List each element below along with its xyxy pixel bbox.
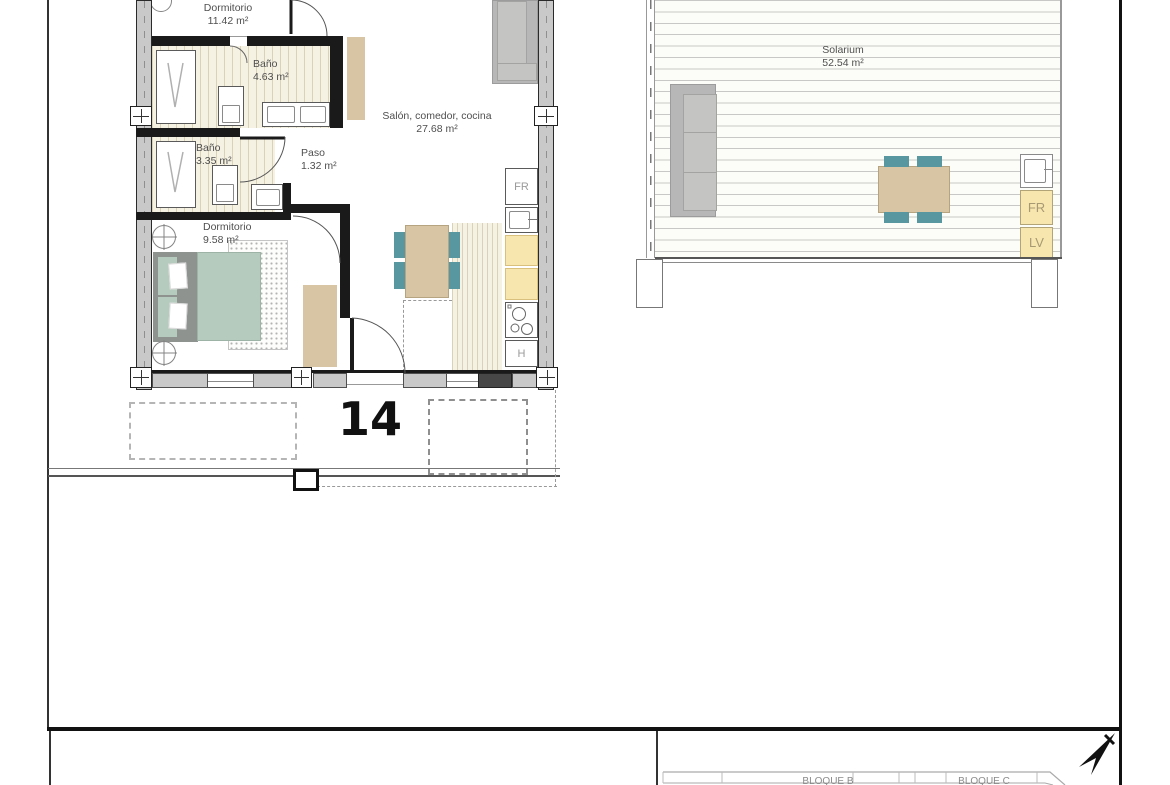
room-label-bano-2: Baño 3.35 m² <box>196 142 256 167</box>
oven-box: H <box>505 340 538 367</box>
wall <box>538 0 554 390</box>
wall <box>283 183 291 213</box>
door-head-line <box>230 36 247 37</box>
door-swing <box>228 44 250 66</box>
kitchen-cabinet <box>505 268 538 300</box>
pillow <box>168 303 187 330</box>
room-label-bano-1: Baño 4.63 m² <box>253 58 313 83</box>
wall <box>330 36 343 128</box>
room-label-dormitorio-2: Dormitorio 9.58 m² <box>203 221 273 246</box>
room-name: Dormitorio <box>188 2 268 15</box>
chair <box>917 156 942 167</box>
chair <box>884 212 909 223</box>
room-name: Paso <box>301 147 356 160</box>
column <box>1031 259 1058 308</box>
sofa <box>670 84 716 217</box>
window <box>447 373 478 388</box>
room-label-paso: Paso 1.32 m² <box>301 147 356 172</box>
wall <box>152 373 208 388</box>
bed-blanket <box>197 252 261 341</box>
room-label-dormitorio-1: Dormitorio 11.42 m² <box>188 2 268 27</box>
wall <box>136 212 291 220</box>
survey-marker <box>293 469 319 491</box>
shutter-box <box>478 373 512 388</box>
boundary-dashed-line <box>317 486 557 487</box>
dining-table <box>878 166 950 213</box>
wall <box>253 373 293 388</box>
wall <box>313 373 347 388</box>
sink-icon <box>1020 154 1053 188</box>
wardrobe <box>347 37 365 120</box>
page-border-left <box>47 0 49 728</box>
toilet-icon <box>218 86 244 126</box>
solarium-floor-line <box>663 262 1032 263</box>
fridge-label: FR <box>1028 200 1045 215</box>
joint-marker-icon <box>130 106 152 126</box>
room-label-salon: Salón, comedor, cocina 27.68 m² <box>372 110 502 135</box>
room-name: Baño <box>253 58 313 71</box>
room-area: 1.32 m² <box>301 160 356 173</box>
dishwasher-box: LV <box>1020 227 1053 258</box>
double-sink-vanity-icon <box>262 102 330 127</box>
room-name: Solarium <box>793 44 893 57</box>
kitchen-cabinet <box>505 235 538 266</box>
fridge-label: FR <box>514 181 529 193</box>
block-c-label: BLOQUE C <box>944 776 1024 785</box>
north-arrow-icon <box>1072 730 1118 778</box>
dining-table <box>405 225 449 298</box>
parking-space <box>129 402 297 460</box>
toilet-icon <box>212 165 238 205</box>
door-swing <box>291 214 343 266</box>
solarium-floor-line <box>655 257 1062 259</box>
block-b-label: BLOQUE B <box>788 776 868 785</box>
room-label-solarium: Solarium 52.54 m² <box>793 44 893 69</box>
room-area: 3.35 m² <box>196 155 256 168</box>
entrance-door-swing <box>347 316 407 376</box>
sink-icon <box>251 184 283 210</box>
pillow <box>168 262 188 289</box>
entrance-sill-line <box>347 384 403 385</box>
kitchen-zone-dashed-line <box>403 300 452 301</box>
dishwasher-label: LV <box>1029 235 1044 250</box>
boundary-dashed-line <box>555 390 556 487</box>
joint-marker-icon <box>534 106 558 126</box>
window <box>208 373 253 388</box>
title-divider-line <box>47 727 1122 731</box>
wardrobe <box>303 285 337 367</box>
chair <box>449 262 460 289</box>
ceiling-light-icon <box>150 223 178 251</box>
wall <box>136 128 240 137</box>
parking-space <box>428 399 528 475</box>
sofa <box>492 0 538 84</box>
wall <box>136 0 152 390</box>
room-area: 27.68 m² <box>372 123 502 136</box>
joint-marker-icon <box>130 367 152 388</box>
room-area: 11.42 m² <box>188 15 268 28</box>
room-name: Baño <box>196 142 256 155</box>
wall <box>152 36 230 46</box>
chair <box>917 212 942 223</box>
fridge-box: FR <box>1020 190 1053 225</box>
kitchen-sink-icon <box>505 207 538 233</box>
room-area: 9.58 m² <box>203 234 273 247</box>
room-name: Dormitorio <box>203 221 273 234</box>
footer-divider <box>656 731 658 785</box>
chair <box>394 262 405 289</box>
joint-marker-icon <box>291 367 312 388</box>
chair <box>449 232 460 258</box>
solarium-edge-line <box>1060 0 1062 258</box>
joint-marker-icon <box>536 367 558 388</box>
chair <box>394 232 405 258</box>
page-border-right <box>1119 0 1122 785</box>
door-swing <box>289 0 335 38</box>
column <box>636 259 663 308</box>
railing <box>646 0 655 258</box>
shower-icon <box>156 50 196 124</box>
room-area: 4.63 m² <box>253 71 313 84</box>
ceiling-light-icon <box>150 339 178 367</box>
cooktop-icon <box>505 302 538 338</box>
fridge-box: FR <box>505 168 538 205</box>
unit-number-label: 14 <box>330 394 410 446</box>
footer-border-left <box>49 731 51 785</box>
wall <box>403 373 447 388</box>
room-area: 52.54 m² <box>793 57 893 70</box>
shower-icon <box>156 141 196 208</box>
floorplan-sheet: FR H Dormitorio 11.42 m² Baño 4.63 m² Sa… <box>0 0 1170 785</box>
wall <box>512 373 538 388</box>
oven-label: H <box>518 348 526 360</box>
room-name: Salón, comedor, cocina <box>372 110 502 123</box>
chair <box>884 156 909 167</box>
